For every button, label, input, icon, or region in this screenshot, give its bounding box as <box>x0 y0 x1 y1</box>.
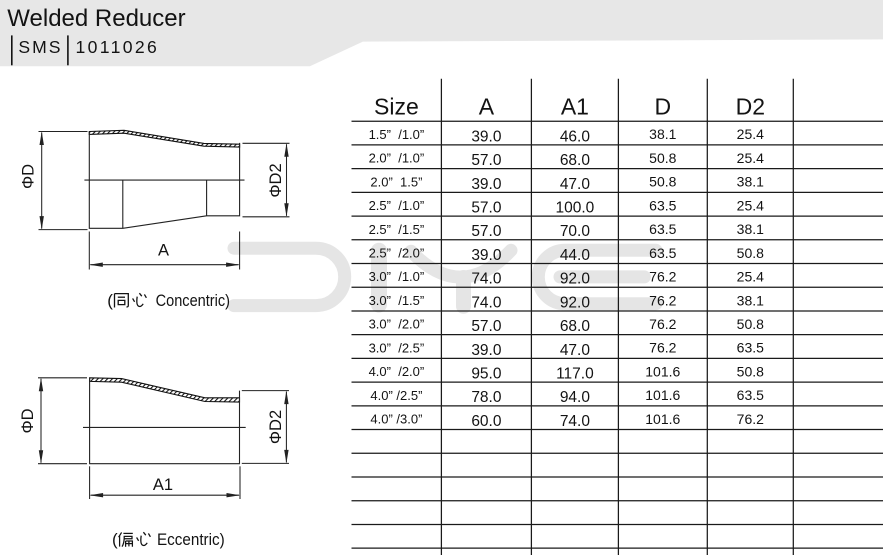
svg-text:A1: A1 <box>153 476 173 494</box>
svg-text:101.6: 101.6 <box>645 387 680 403</box>
svg-text:76.2: 76.2 <box>649 292 676 308</box>
svg-text:50.8: 50.8 <box>649 150 676 166</box>
svg-text:ΦD2: ΦD2 <box>267 163 285 197</box>
svg-text:4.0” /3.0”: 4.0” /3.0” <box>370 412 422 427</box>
svg-text:44.0: 44.0 <box>560 247 591 264</box>
svg-text:76.2: 76.2 <box>649 340 676 356</box>
svg-text:38.1: 38.1 <box>737 292 764 308</box>
svg-text:A1: A1 <box>561 94 589 120</box>
svg-text:57.0: 57.0 <box>471 223 502 240</box>
svg-text:57.0: 57.0 <box>471 318 502 335</box>
svg-text:68.0: 68.0 <box>560 318 591 335</box>
svg-text:2.5” /1.0”: 2.5” /1.0” <box>369 198 425 213</box>
svg-text:ΦD: ΦD <box>19 408 37 433</box>
svg-text:50.8: 50.8 <box>737 363 764 379</box>
svg-text:Concentric): Concentric) <box>156 291 230 310</box>
svg-text:47.0: 47.0 <box>560 342 591 359</box>
svg-text:95.0: 95.0 <box>471 366 502 383</box>
svg-text:38.1: 38.1 <box>737 174 764 190</box>
svg-text:63.5: 63.5 <box>649 245 676 261</box>
svg-text:94.0: 94.0 <box>560 389 591 406</box>
svg-text:60.0: 60.0 <box>471 413 502 430</box>
svg-text:2.0” /1.0”: 2.0” /1.0” <box>369 151 425 166</box>
svg-text:25.4: 25.4 <box>737 269 764 285</box>
svg-text:39.0: 39.0 <box>471 342 502 359</box>
svg-text:68.0: 68.0 <box>560 152 591 169</box>
svg-text:A: A <box>479 94 495 120</box>
svg-text:117.0: 117.0 <box>556 366 594 383</box>
svg-text:4.0” /2.0”: 4.0” /2.0” <box>369 364 425 379</box>
svg-text:101.6: 101.6 <box>645 411 680 427</box>
svg-text:SMS: SMS <box>18 37 62 57</box>
svg-text:76.2: 76.2 <box>649 269 676 285</box>
svg-text:Welded Reducer: Welded Reducer <box>7 5 185 32</box>
svg-text:25.4: 25.4 <box>737 126 764 142</box>
svg-text:39.0: 39.0 <box>471 128 502 145</box>
svg-text:76.2: 76.2 <box>649 316 676 332</box>
svg-text:4.0” /2.5”: 4.0” /2.5” <box>370 388 422 403</box>
svg-text:46.0: 46.0 <box>560 128 591 145</box>
svg-text:ΦD: ΦD <box>20 164 38 189</box>
svg-text:(: ( <box>107 291 113 310</box>
svg-text:2.5” /2.0”: 2.5” /2.0” <box>369 246 425 261</box>
svg-text:63.5: 63.5 <box>737 340 764 356</box>
svg-text:(: ( <box>112 530 118 549</box>
svg-text:63.5: 63.5 <box>649 197 676 213</box>
svg-text:100.0: 100.0 <box>556 199 595 216</box>
svg-text:50.8: 50.8 <box>737 316 764 332</box>
svg-text:D2: D2 <box>736 94 765 120</box>
svg-text:3.0” /1.5”: 3.0” /1.5” <box>369 293 425 308</box>
svg-text:39.0: 39.0 <box>471 247 502 264</box>
svg-text:92.0: 92.0 <box>560 271 591 288</box>
svg-text:63.5: 63.5 <box>737 387 764 403</box>
svg-text:78.0: 78.0 <box>471 389 502 406</box>
svg-text:76.2: 76.2 <box>737 411 764 427</box>
svg-text:2.5” /1.5”: 2.5” /1.5” <box>369 222 425 237</box>
svg-text:Eccentric): Eccentric) <box>157 530 225 549</box>
svg-text:1011026: 1011026 <box>76 37 160 57</box>
svg-text:25.4: 25.4 <box>737 150 764 166</box>
svg-text:74.0: 74.0 <box>471 294 502 311</box>
svg-text:1.5” /1.0”: 1.5” /1.0” <box>369 127 425 142</box>
svg-text:74.0: 74.0 <box>560 413 591 430</box>
svg-text:3.0” /1.0”: 3.0” /1.0” <box>369 269 425 284</box>
svg-text:63.5: 63.5 <box>649 221 676 237</box>
svg-text:3.0” /2.0”: 3.0” /2.0” <box>369 317 425 332</box>
svg-text:74.0: 74.0 <box>471 271 502 288</box>
svg-text:47.0: 47.0 <box>560 176 591 193</box>
svg-text:92.0: 92.0 <box>560 294 591 311</box>
svg-text:38.1: 38.1 <box>649 126 676 142</box>
svg-text:25.4: 25.4 <box>737 197 764 213</box>
svg-text:ΦD2: ΦD2 <box>267 410 285 444</box>
svg-text:101.6: 101.6 <box>645 363 680 379</box>
svg-text:57.0: 57.0 <box>471 152 502 169</box>
svg-text:D: D <box>654 94 671 120</box>
svg-text:2.0” 1.5”: 2.0” 1.5” <box>370 174 422 189</box>
svg-text:38.1: 38.1 <box>737 221 764 237</box>
svg-text:50.8: 50.8 <box>649 174 676 190</box>
svg-text:Size: Size <box>374 94 419 120</box>
svg-text:50.8: 50.8 <box>737 245 764 261</box>
svg-text:39.0: 39.0 <box>471 176 502 193</box>
svg-text:A: A <box>158 242 169 260</box>
svg-text:3.0” /2.5”: 3.0” /2.5” <box>369 340 425 355</box>
svg-text:70.0: 70.0 <box>560 223 591 240</box>
svg-text:57.0: 57.0 <box>471 199 502 216</box>
